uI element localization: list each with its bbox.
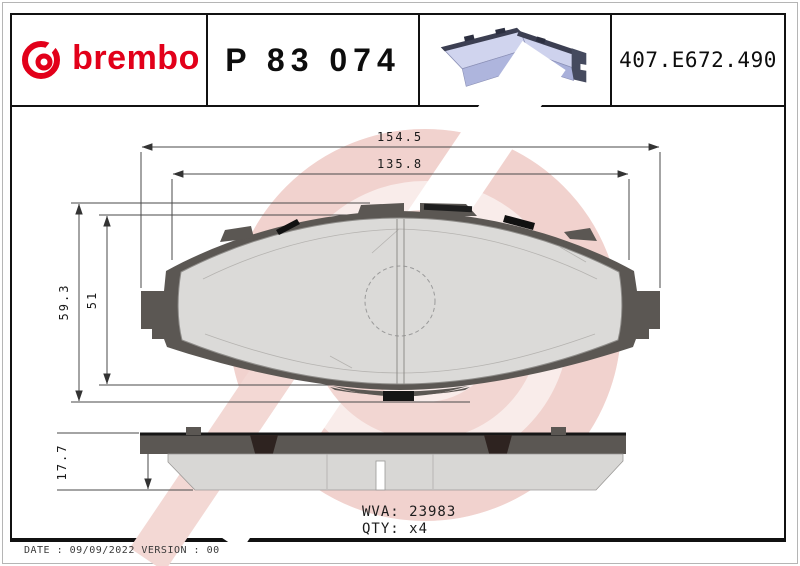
- part-number-cell: P 83 074: [208, 15, 420, 105]
- catalog-code: 407.E672.490: [619, 48, 777, 72]
- brand-logo-cell: brembo: [12, 15, 208, 105]
- brand-name: brembo: [72, 41, 200, 75]
- illustration-cell: [420, 15, 612, 105]
- brake-pad-illustration: [426, 18, 604, 102]
- qty-note: QTY: x4: [362, 521, 428, 537]
- main-border-box: brembo P 83 074: [10, 13, 786, 542]
- brake-pad-datasheet: brembo P 83 074: [0, 0, 800, 566]
- catalog-code-cell: 407.E672.490: [612, 15, 784, 105]
- footer-note: DATE : 09/09/2022 VERSION : 00: [24, 545, 220, 556]
- drawing-notes: WVA: 23983QTY: x4: [362, 504, 456, 538]
- wva-note: WVA: 23983: [362, 504, 456, 520]
- header-row: brembo P 83 074: [12, 15, 784, 107]
- part-number: P 83 074: [225, 42, 401, 79]
- brembo-logo-icon: [18, 37, 64, 83]
